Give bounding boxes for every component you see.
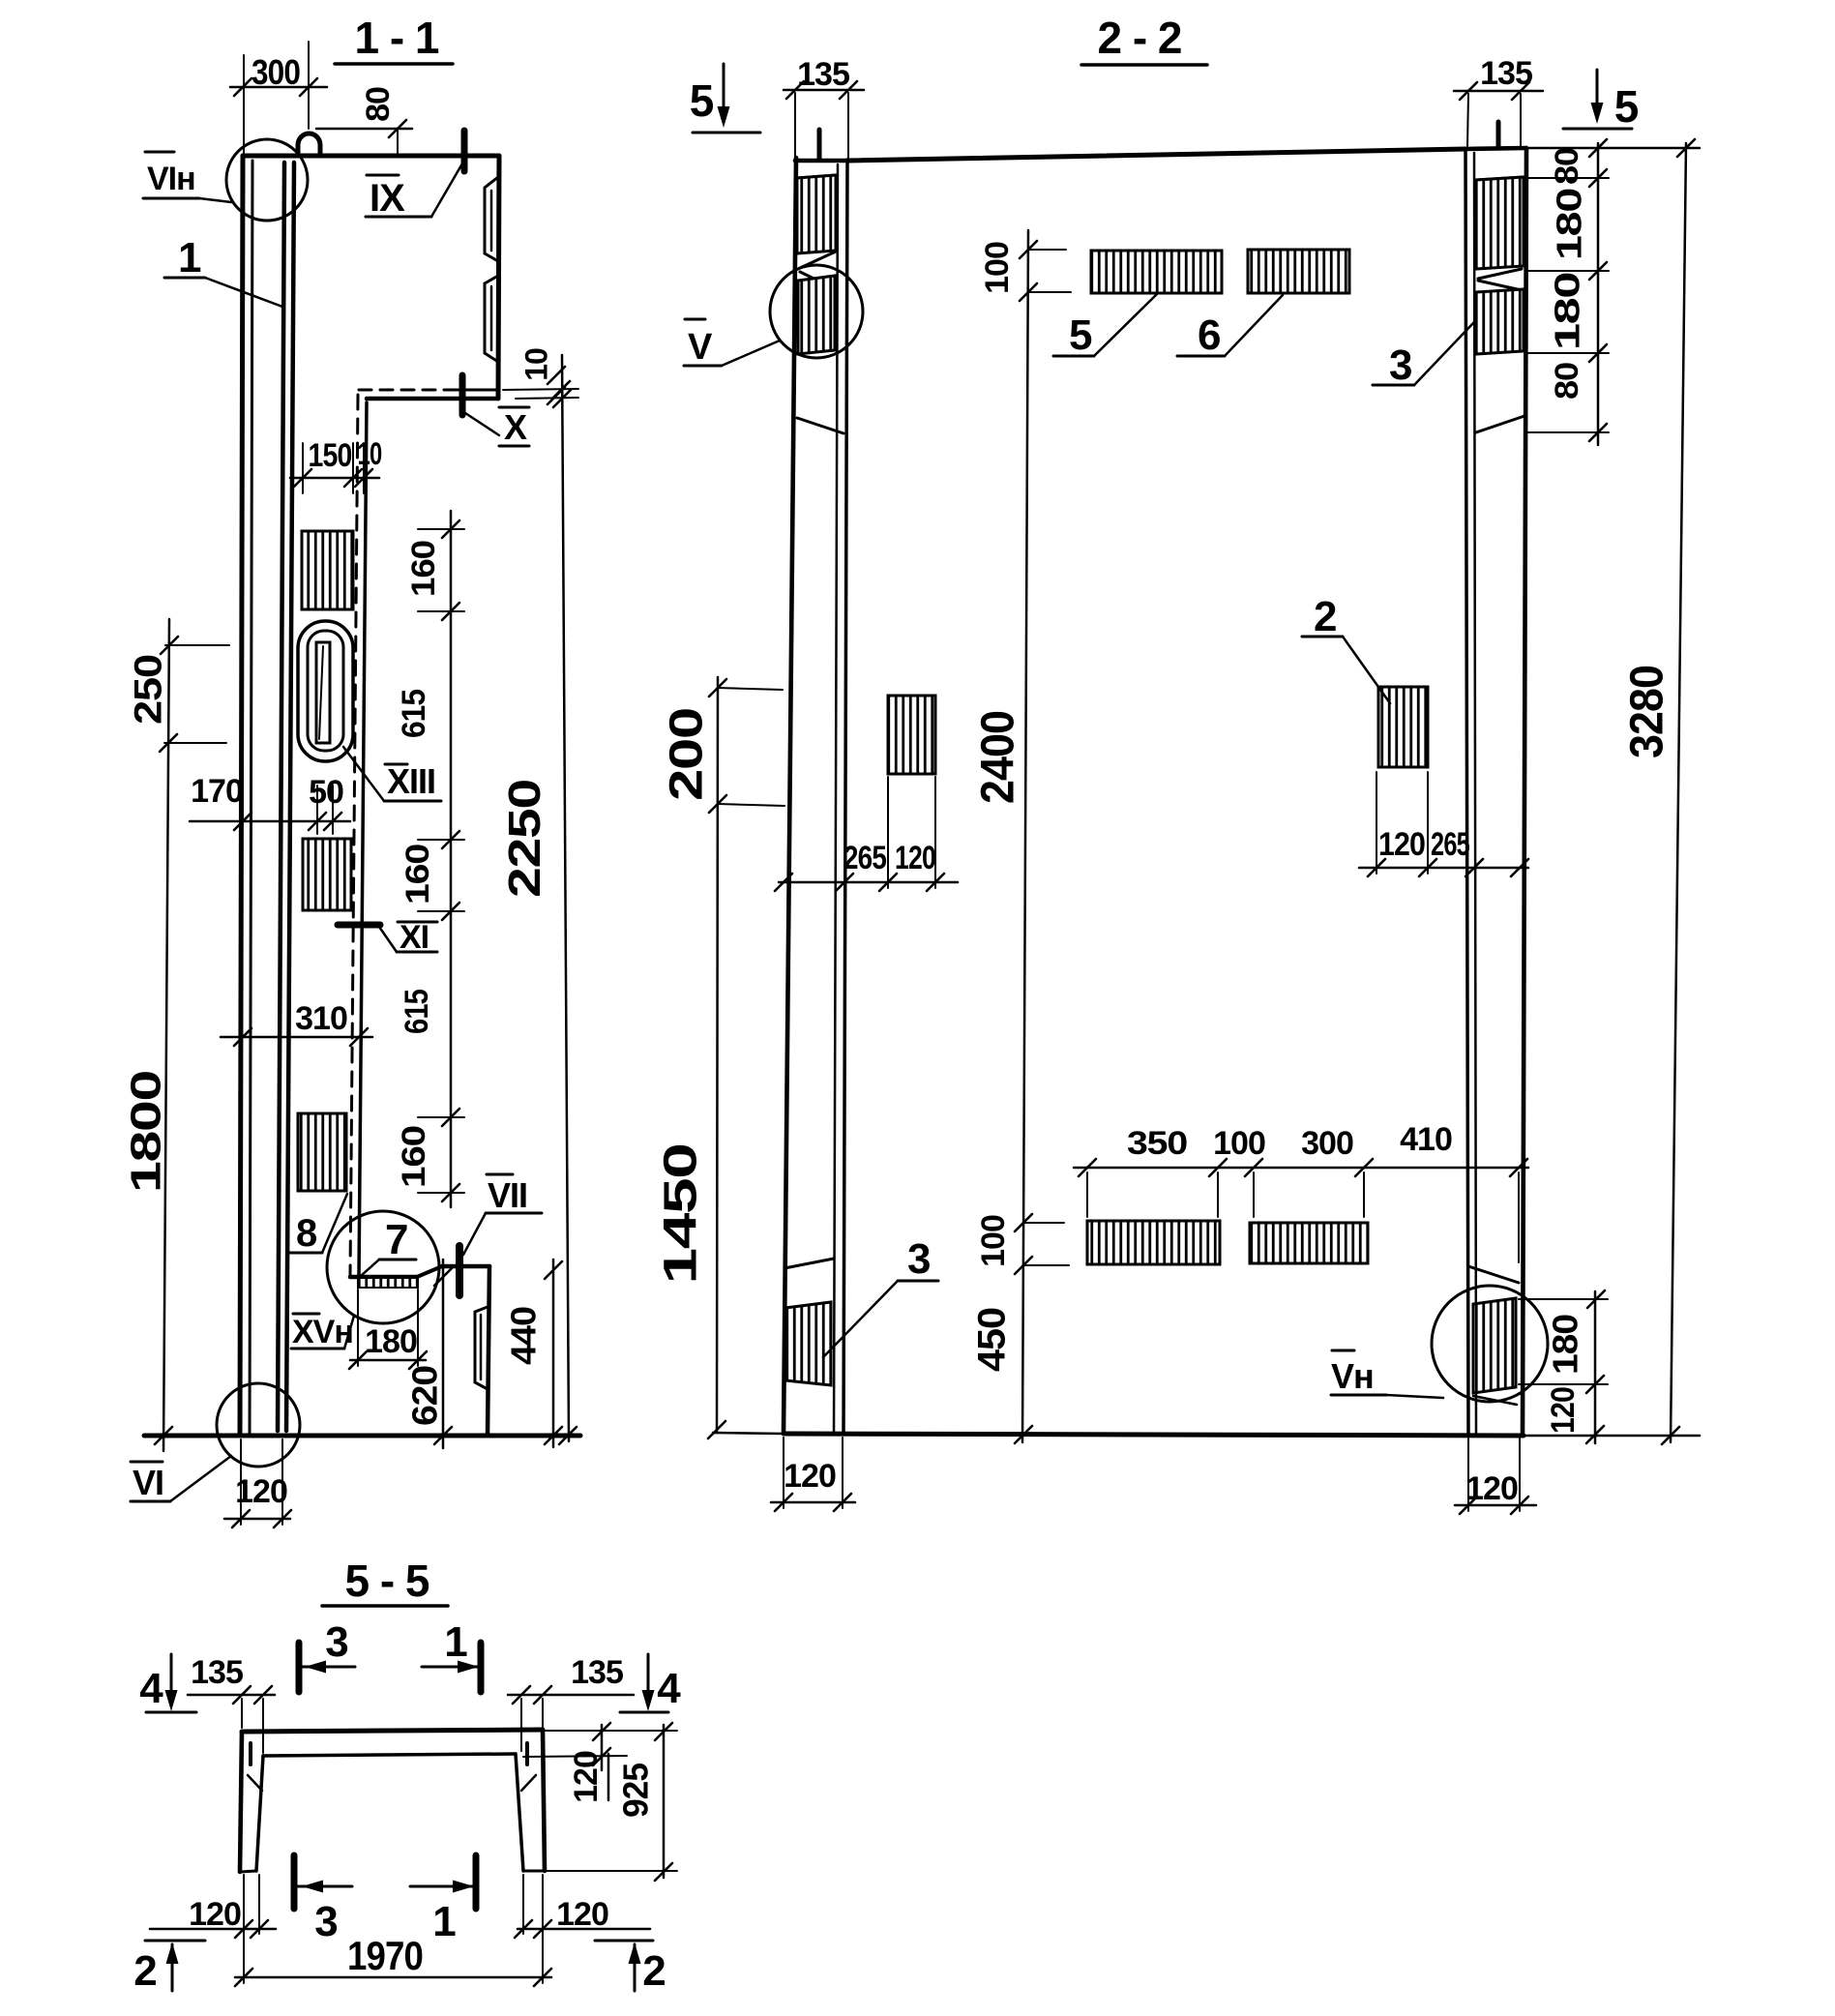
svg-text:120: 120 [1545, 1387, 1582, 1434]
svg-text:XI: XI [400, 919, 429, 956]
svg-text:3: 3 [314, 1898, 337, 1945]
svg-text:5 - 5: 5 - 5 [344, 1556, 429, 1606]
svg-text:120: 120 [235, 1473, 287, 1510]
svg-text:300: 300 [1301, 1125, 1353, 1162]
svg-text:265: 265 [1431, 826, 1469, 863]
svg-text:50: 50 [309, 774, 343, 811]
svg-text:120: 120 [189, 1896, 241, 1933]
svg-text:80: 80 [1549, 148, 1585, 185]
svg-text:2250: 2250 [499, 780, 549, 898]
svg-text:2 - 2: 2 - 2 [1097, 13, 1181, 63]
svg-text:2: 2 [133, 1947, 156, 1995]
svg-text:135: 135 [797, 56, 849, 93]
svg-text:1: 1 [178, 234, 201, 282]
svg-text:5: 5 [1069, 311, 1092, 359]
svg-text:4: 4 [139, 1665, 163, 1712]
svg-text:160: 160 [405, 541, 442, 597]
svg-text:615: 615 [399, 990, 435, 1034]
svg-text:2400: 2400 [973, 711, 1024, 804]
svg-text:1450: 1450 [656, 1144, 707, 1285]
svg-text:5: 5 [690, 75, 714, 126]
svg-text:100: 100 [979, 242, 1016, 294]
svg-text:IX: IX [370, 177, 405, 220]
svg-text:440: 440 [504, 1307, 544, 1365]
svg-text:3280: 3280 [1622, 666, 1673, 758]
svg-text:XVн: XVн [292, 1314, 353, 1350]
svg-text:2: 2 [1314, 593, 1336, 640]
svg-text:120: 120 [556, 1896, 608, 1933]
svg-text:620: 620 [405, 1366, 445, 1426]
svg-text:3: 3 [907, 1235, 930, 1283]
svg-text:80: 80 [360, 87, 397, 122]
svg-text:4: 4 [657, 1665, 681, 1712]
svg-text:615: 615 [396, 690, 432, 738]
svg-text:10: 10 [518, 348, 553, 381]
svg-text:135: 135 [571, 1654, 623, 1691]
svg-text:5: 5 [1614, 81, 1639, 132]
svg-text:120: 120 [784, 1458, 836, 1495]
svg-text:V: V [688, 327, 713, 368]
svg-text:3: 3 [1389, 341, 1411, 389]
svg-text:VII: VII [488, 1175, 527, 1215]
svg-text:6: 6 [1198, 311, 1220, 359]
svg-text:100: 100 [975, 1215, 1012, 1267]
svg-text:350: 350 [1127, 1125, 1187, 1162]
svg-text:1 - 1: 1 - 1 [354, 13, 438, 63]
svg-text:310: 310 [295, 1000, 347, 1037]
svg-text:160: 160 [400, 845, 436, 904]
svg-text:80: 80 [1549, 363, 1585, 400]
svg-text:1: 1 [444, 1618, 467, 1666]
svg-text:120: 120 [895, 840, 935, 876]
svg-text:3: 3 [325, 1618, 347, 1666]
svg-text:180: 180 [1550, 189, 1589, 260]
svg-text:200: 200 [662, 708, 713, 801]
svg-text:180: 180 [1548, 273, 1587, 350]
svg-text:Vн: Vн [1331, 1356, 1374, 1396]
svg-text:120: 120 [1378, 826, 1425, 863]
svg-text:VI: VI [133, 1463, 163, 1502]
svg-text:250: 250 [128, 655, 170, 725]
svg-text:1800: 1800 [123, 1071, 170, 1193]
svg-text:150: 150 [309, 437, 352, 474]
svg-text:180: 180 [365, 1323, 417, 1360]
svg-text:VIн: VIн [147, 161, 195, 197]
svg-text:265: 265 [844, 840, 886, 876]
svg-text:X: X [504, 407, 527, 447]
svg-text:7: 7 [385, 1216, 407, 1263]
svg-text:410: 410 [1400, 1121, 1452, 1158]
svg-text:2: 2 [642, 1947, 665, 1995]
svg-text:100: 100 [1213, 1125, 1265, 1162]
svg-text:925: 925 [616, 1763, 656, 1818]
svg-text:1970: 1970 [347, 1933, 423, 1978]
svg-text:XIII: XIII [387, 761, 435, 801]
svg-text:170: 170 [191, 773, 243, 810]
svg-text:450: 450 [971, 1308, 1014, 1372]
svg-text:10: 10 [358, 436, 382, 471]
svg-text:1: 1 [432, 1898, 456, 1945]
svg-text:160: 160 [396, 1126, 432, 1188]
svg-text:180: 180 [1546, 1315, 1585, 1375]
svg-text:8: 8 [296, 1212, 317, 1255]
svg-text:135: 135 [191, 1654, 243, 1691]
